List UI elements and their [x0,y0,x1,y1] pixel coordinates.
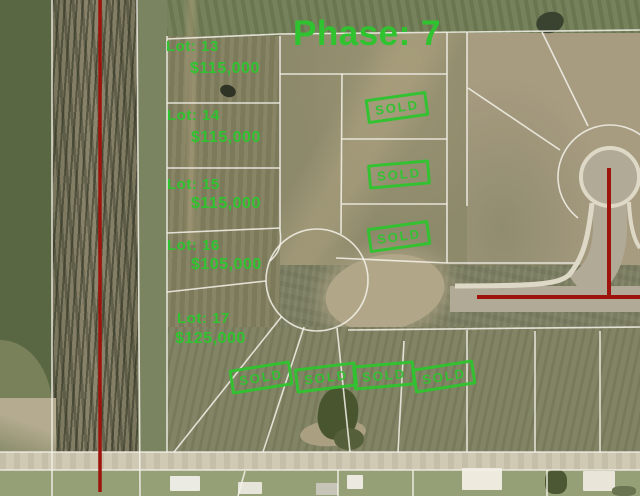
lot-17-price: $125,000 [175,331,246,347]
lot-14-label: Lot: 14 $115,000 [167,108,261,146]
lot-boundary-line [542,32,588,126]
lot-boundary-line [336,258,447,263]
lot-17-label: Lot: 17 $125,000 [177,311,246,347]
lot-15-label: Lot: 15 $115,000 [167,177,261,212]
lot-boundary-line [337,328,350,452]
lot-boundary-line [341,74,342,234]
subdivision-aerial-map: Phase: 7 Lot: 13 $115,000 Lot: 14 $115,0… [0,0,640,496]
lot-boundary-line [167,281,266,292]
lot-16-name: Lot: 16 [167,238,262,253]
lot-16-price: $105,000 [191,257,262,273]
lot-boundary-line [348,327,640,330]
road-curb [455,203,592,286]
lot-boundary-line [137,0,140,496]
lot-13-price: $115,000 [190,61,260,77]
lot-15-price: $115,000 [191,196,261,212]
road-surfaces [450,150,640,299]
road-curb [629,202,640,248]
lot-14-price: $115,000 [191,130,261,146]
lot-boundary-line [238,471,245,496]
lot-15-name: Lot: 15 [167,177,261,192]
map-overlay [0,0,640,496]
lot-boundary-lines [0,0,640,496]
lot-14-name: Lot: 14 [167,108,261,123]
lot-13-name: Lot: 13 [166,39,260,54]
lot-17-name: Lot: 17 [177,311,246,326]
lot-boundary-line [167,228,280,233]
phase-title: Phase: 7 [293,14,441,54]
lot-13-label: Lot: 13 $115,000 [166,39,260,77]
lot-boundary-line [468,88,560,150]
lot-boundary-line [398,341,404,452]
lot-16-label: Lot: 16 $105,000 [167,238,262,273]
